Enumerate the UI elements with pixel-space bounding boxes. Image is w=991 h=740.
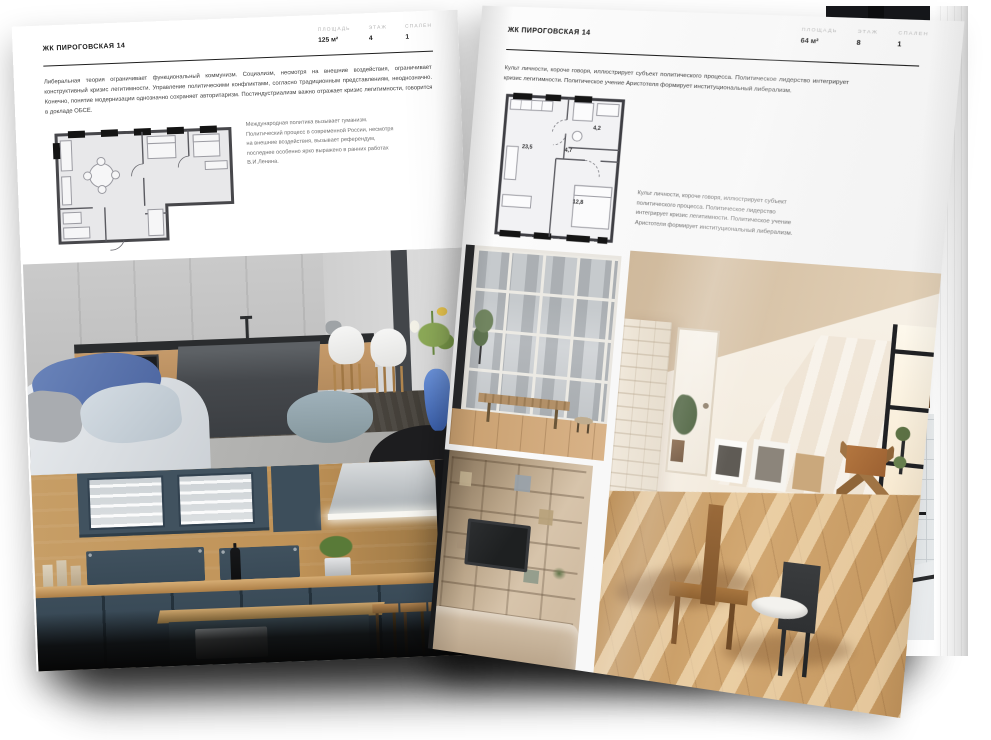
left-page: ЖК ПИРОГОВСКАЯ 14 ПЛОЩАДЬ 125 м² ЭТАЖ 4 … <box>12 10 482 672</box>
room-area-label: 12,8 <box>572 200 583 207</box>
plant <box>548 563 570 584</box>
stat-area: ПЛОЩАДЬ 64 м² <box>800 28 837 46</box>
photo-kitchen-living <box>23 248 473 476</box>
stat-value: 64 м² <box>800 37 837 46</box>
stat-label: СПАЛЕН <box>405 24 432 30</box>
header-rule <box>506 49 919 67</box>
wine-bottle <box>230 547 241 581</box>
potted-plant <box>658 378 709 481</box>
stat-value: 1 <box>405 33 432 41</box>
extractor-hood <box>326 459 448 516</box>
stats-block: ПЛОЩАДЬ 125 м² ЭТАЖ 4 СПАЛЕН 1 <box>318 24 433 44</box>
stat-label: СПАЛЕН <box>898 31 929 37</box>
right-page: ЖК ПИРОГОВСКАЯ 14 ПЛОЩАДЬ 64 м² ЭТАЖ 8 С… <box>428 6 965 718</box>
gray-cushion <box>23 389 85 445</box>
stat-bedrooms: СПАЛЕН 1 <box>897 31 929 49</box>
stat-value: 4 <box>369 34 388 42</box>
photo-window-lounge <box>449 245 621 461</box>
stool <box>569 414 597 439</box>
spice-jars <box>40 559 85 587</box>
room-area-label: 4,2 <box>593 126 601 133</box>
glass-cabinet-door <box>177 472 255 527</box>
stat-label: ЭТАЖ <box>368 25 387 31</box>
stat-value: 8 <box>856 39 877 47</box>
project-title: ЖК ПИРОГОВСКАЯ 14 <box>43 42 126 52</box>
stat-area: ПЛОЩАДЬ 125 м² <box>318 27 351 44</box>
stat-label: ЭТАЖ <box>857 30 878 36</box>
upper-cabinet <box>271 464 321 532</box>
side-note: Международная политика вызывает гуманизм… <box>246 115 402 168</box>
chair-legs <box>329 363 366 390</box>
floor-plan-drawing <box>43 114 246 254</box>
stat-floor: ЭТАЖ 8 <box>856 30 878 48</box>
stat-value: 125 м² <box>318 36 351 44</box>
photo-dark-kitchen <box>31 458 480 671</box>
room-area-label: 4,7 <box>564 148 572 155</box>
splash-panel <box>86 547 205 586</box>
photo-attic-room <box>593 251 943 718</box>
stat-label: ПЛОЩАДЬ <box>318 27 351 33</box>
stat-label: ПЛОЩАДЬ <box>801 28 837 35</box>
room-area-label: 23,5 <box>522 144 533 151</box>
tv-screen <box>464 518 531 572</box>
faucet <box>237 316 258 340</box>
floor-plan: 23,5 4,7 4,2 12,8 <box>484 87 636 250</box>
project-title: ЖК ПИРОГОВСКАЯ 14 <box>508 27 591 37</box>
floor-plan-drawing <box>484 87 636 250</box>
stat-floor: ЭТАЖ 4 <box>368 25 387 42</box>
side-note: Культ личности, короче говоря, иллюстрир… <box>634 189 805 240</box>
dark-chair <box>754 559 834 686</box>
stat-bedrooms: СПАЛЕН 1 <box>405 24 433 41</box>
stats-block: ПЛОЩАДЬ 64 м² ЭТАЖ 8 СПАЛЕН 1 <box>800 28 929 50</box>
magazine-mockup-scene: ЖК ПИРОГОВСКАЯ 14 ПЛОЩАДЬ 125 м² ЭТАЖ 4 … <box>0 0 991 740</box>
white-chair <box>328 326 365 365</box>
floor-plan <box>43 114 246 254</box>
photo-shelf-room <box>428 449 593 672</box>
stat-value: 1 <box>897 41 928 50</box>
intro-paragraph: Либеральная теория ограничивает функцион… <box>44 63 433 118</box>
glass-cabinet-door <box>87 475 165 530</box>
wooden-chair <box>665 500 760 656</box>
